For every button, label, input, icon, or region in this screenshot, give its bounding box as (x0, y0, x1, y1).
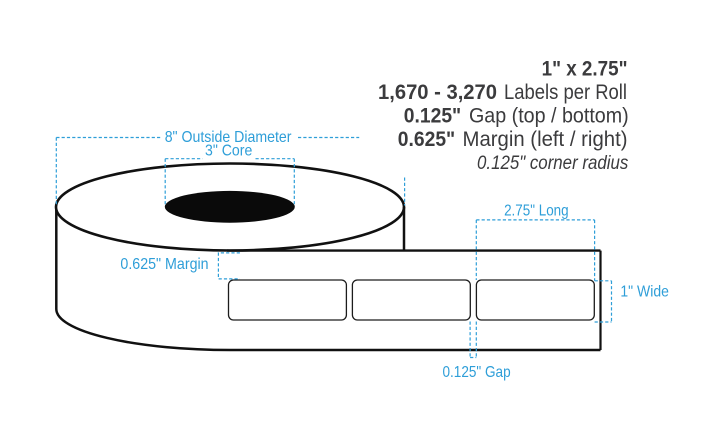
svg-text:1" Wide: 1" Wide (620, 284, 669, 301)
svg-text:1,670 - 3,270: 1,670 - 3,270 (378, 81, 497, 104)
svg-text:Margin (left / right): Margin (left / right) (463, 128, 628, 151)
svg-text:Gap (top / bottom): Gap (top / bottom) (469, 105, 629, 128)
svg-text:1" x 2.75": 1" x 2.75" (542, 57, 628, 80)
svg-text:0.625": 0.625" (398, 128, 455, 151)
svg-text:Labels per Roll: Labels per Roll (504, 81, 627, 104)
svg-text:0.125" Gap: 0.125" Gap (443, 364, 511, 381)
svg-text:2.75" Long: 2.75" Long (504, 203, 568, 220)
svg-text:3" Core: 3" Core (205, 143, 252, 160)
svg-text:0.125" corner radius: 0.125" corner radius (477, 153, 629, 174)
svg-text:0.125": 0.125" (404, 105, 461, 128)
svg-text:0.625" Margin: 0.625" Margin (120, 256, 208, 273)
